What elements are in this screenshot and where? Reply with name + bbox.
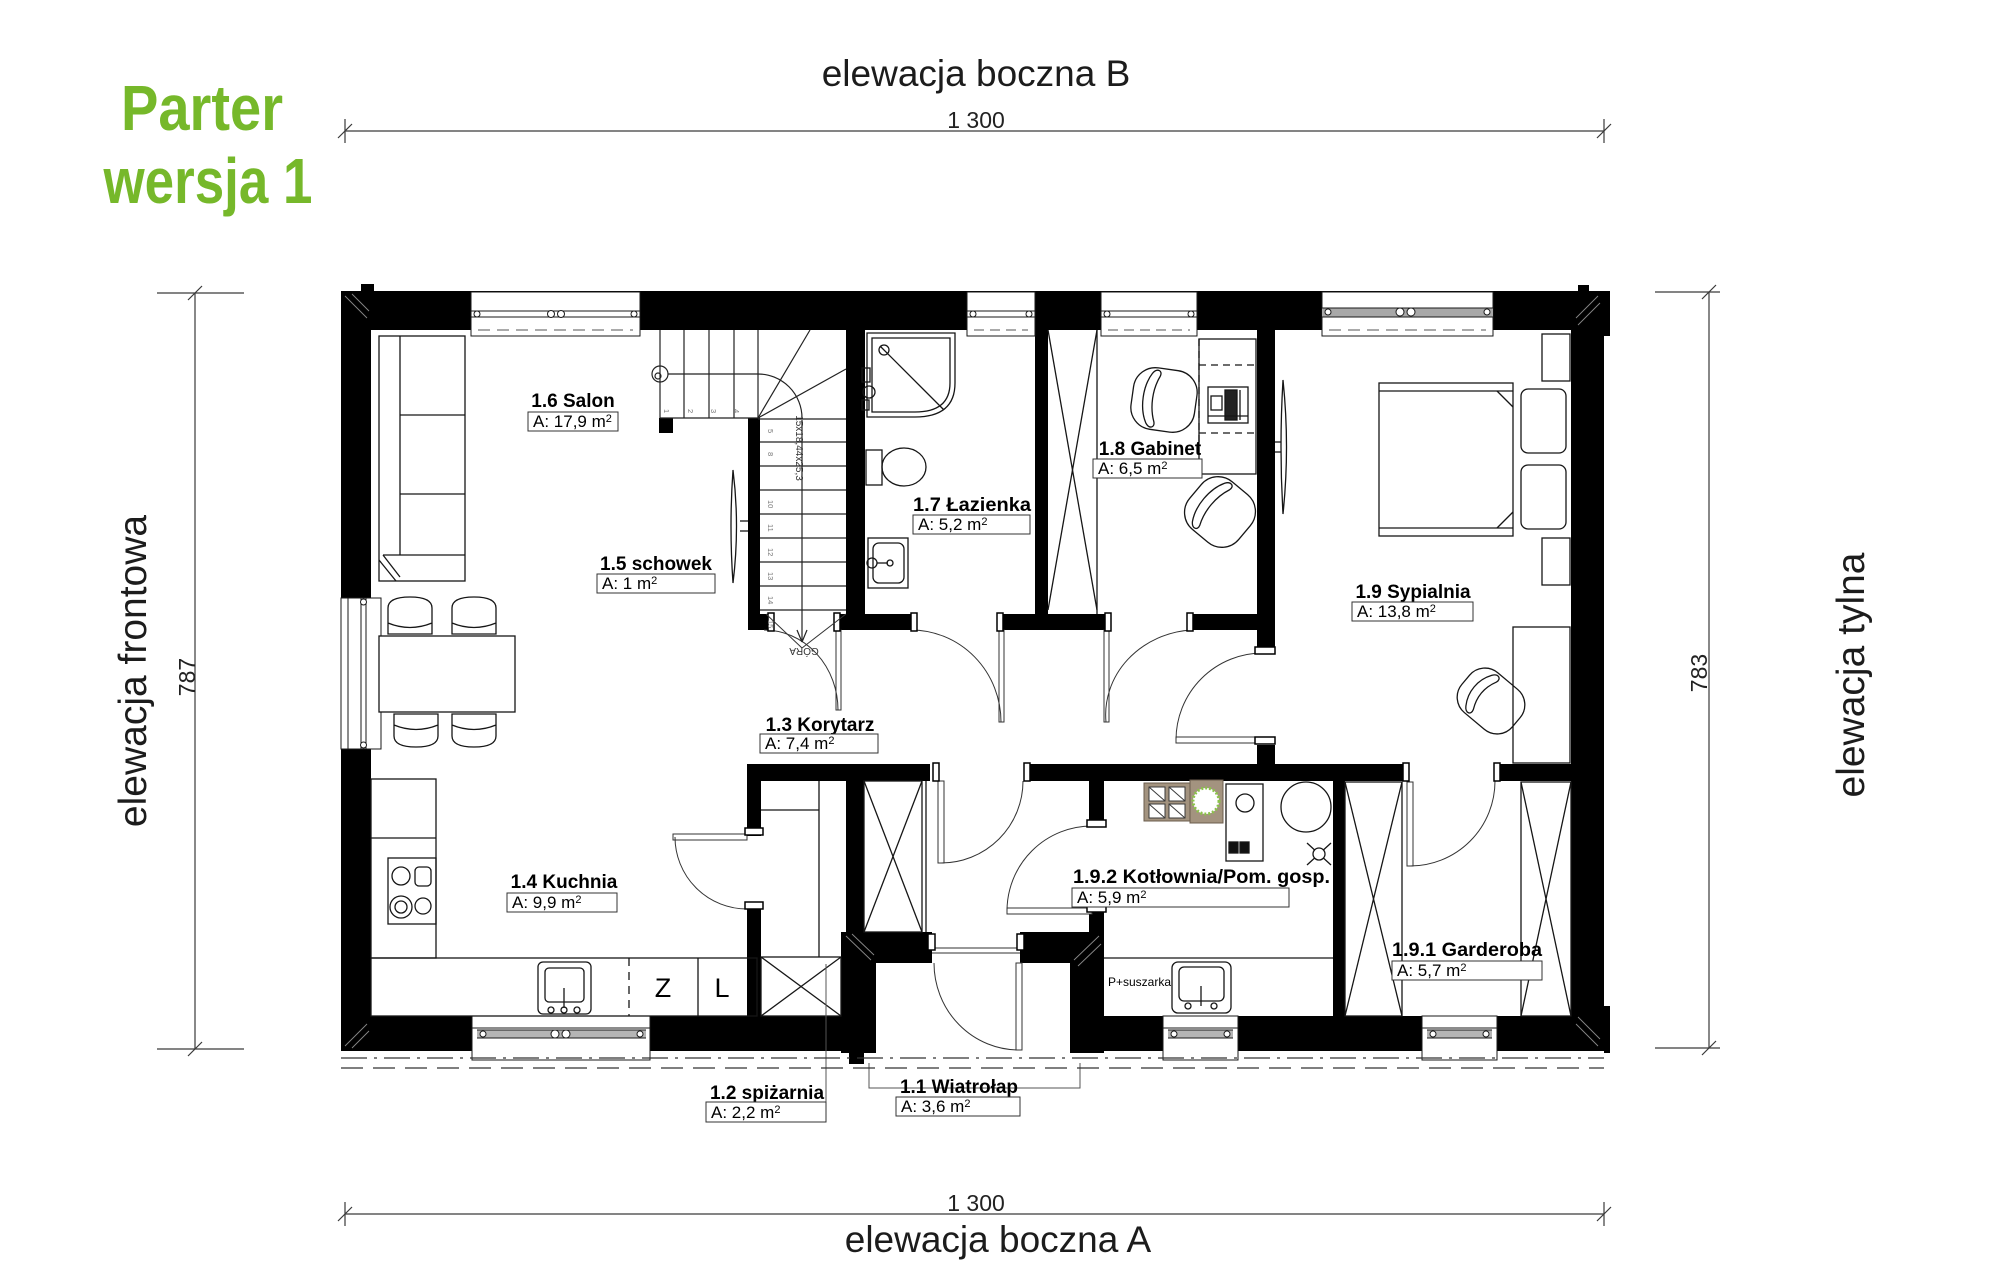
svg-text:1 300: 1 300 (947, 107, 1005, 133)
svg-text:A: 3,6 m2: A: 3,6 m2 (901, 1097, 970, 1116)
svg-text:elewacja boczna A: elewacja boczna A (845, 1219, 1152, 1260)
svg-text:A: 6,5 m2: A: 6,5 m2 (1098, 459, 1167, 478)
svg-text:4: 4 (732, 409, 741, 413)
svg-text:8: 8 (766, 452, 775, 456)
svg-text:3: 3 (709, 409, 718, 413)
svg-text:1.6 Salon: 1.6 Salon (531, 391, 614, 412)
svg-text:A: 7,4 m2: A: 7,4 m2 (765, 734, 834, 753)
svg-text:1 300: 1 300 (947, 1190, 1005, 1216)
svg-text:5: 5 (766, 429, 775, 433)
svg-text:1.3 Korytarz: 1.3 Korytarz (766, 715, 875, 736)
svg-text:A: 2,2 m2: A: 2,2 m2 (711, 1103, 780, 1122)
svg-text:GÓRA: GÓRA (789, 645, 819, 658)
svg-text:L: L (714, 973, 729, 1003)
svg-text:15x18,44x25,3: 15x18,44x25,3 (793, 415, 804, 481)
svg-text:1.8 Gabinet: 1.8 Gabinet (1099, 439, 1202, 460)
svg-text:A: 17,9 m2: A: 17,9 m2 (533, 412, 612, 431)
svg-text:1.1 Wiatrołap: 1.1 Wiatrołap (900, 1077, 1018, 1098)
svg-text:A: 13,8 m2: A: 13,8 m2 (1357, 602, 1436, 621)
svg-text:elewacja frontowa: elewacja frontowa (112, 515, 155, 827)
svg-text:1.9 Sypialnia: 1.9 Sypialnia (1355, 582, 1471, 603)
svg-text:14: 14 (766, 596, 775, 604)
svg-text:elewacja boczna B: elewacja boczna B (822, 53, 1131, 94)
svg-text:2: 2 (686, 409, 695, 413)
svg-text:787: 787 (174, 658, 200, 696)
svg-text:A: 5,7 m2: A: 5,7 m2 (1397, 961, 1466, 980)
svg-text:elewacja tylna: elewacja tylna (1830, 552, 1873, 797)
svg-text:A: 5,2 m2: A: 5,2 m2 (918, 515, 987, 534)
svg-text:Parter: Parter (121, 72, 283, 144)
svg-text:1.4 Kuchnia: 1.4 Kuchnia (511, 872, 618, 893)
svg-text:1.5 schowek: 1.5 schowek (600, 554, 712, 575)
svg-text:12: 12 (766, 548, 775, 556)
svg-text:15: 15 (766, 620, 775, 628)
svg-text:A: 5,9 m2: A: 5,9 m2 (1077, 888, 1146, 907)
svg-text:A: 9,9 m2: A: 9,9 m2 (512, 893, 581, 912)
svg-text:P+suszarka: P+suszarka (1108, 975, 1171, 989)
svg-text:1.9.2 Kotłownia/Pom. gosp.: 1.9.2 Kotłownia/Pom. gosp. (1073, 867, 1330, 888)
svg-text:wersja 1: wersja 1 (103, 145, 313, 217)
svg-text:783: 783 (1686, 654, 1712, 692)
svg-text:1.9.1 Garderoba: 1.9.1 Garderoba (1392, 940, 1542, 961)
svg-text:1.7 Łazienka: 1.7 Łazienka (913, 495, 1031, 516)
svg-text:Z: Z (655, 973, 672, 1003)
svg-text:1.2 spiżarnia: 1.2 spiżarnia (710, 1083, 824, 1104)
svg-text:A: 1 m2: A: 1 m2 (602, 574, 657, 593)
svg-text:1: 1 (662, 409, 671, 413)
svg-text:10: 10 (766, 500, 775, 508)
svg-text:11: 11 (766, 524, 775, 532)
svg-text:13: 13 (766, 572, 775, 580)
